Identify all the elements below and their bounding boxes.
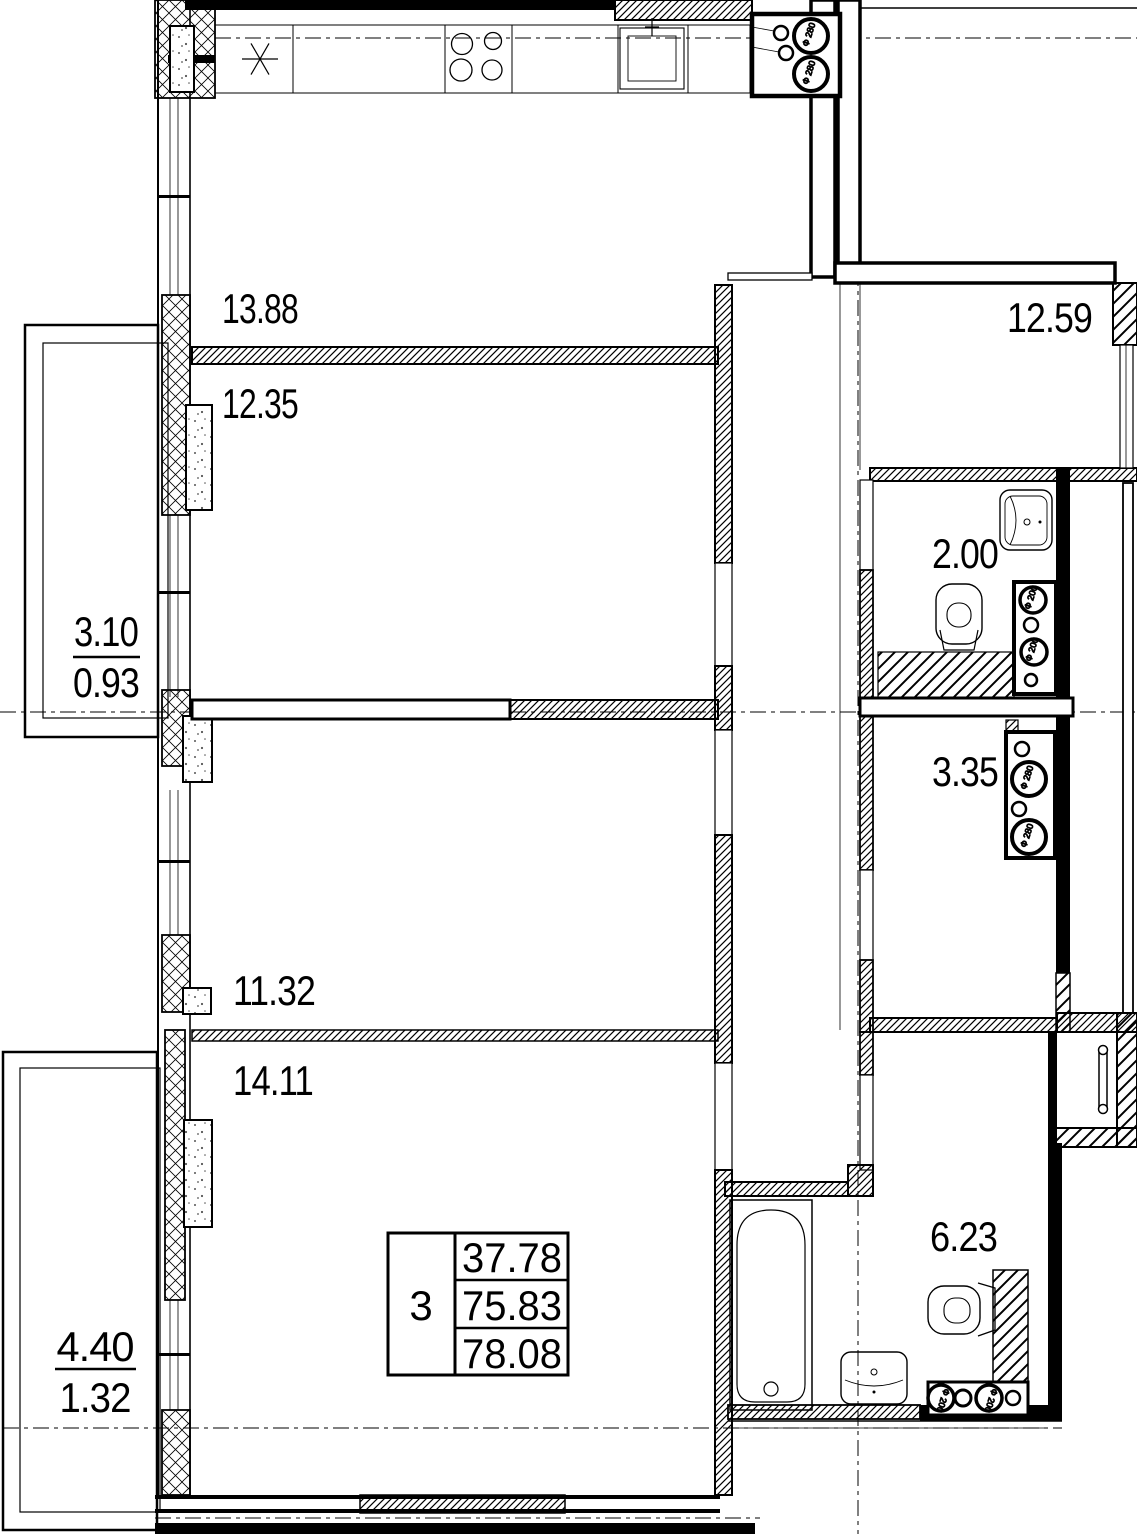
wc-sink-icon [1000,490,1052,550]
kitchen-vent-shaft: Ф 280 Ф 280 [752,14,840,96]
storage-vent-shaft: Ф 280 Ф 280 [1006,732,1055,858]
room-area-labels: 13.88 12.35 12.59 2.00 3.35 11.32 14.11 … [222,285,1092,1260]
wc-toilet-icon [936,584,982,650]
stove-burners-icon [450,33,502,82]
floor-plan-drawing: Ф 280 Ф 280 [0,0,1137,1534]
room-label-kitchen: 13.88 [222,285,298,332]
balcony-bottom-reduced-area: 1.32 [60,1374,131,1421]
door-opening-room-1 [715,563,732,666]
balcony-bottom-outline [3,1052,160,1530]
room-label-room-3: 14.11 [233,1057,313,1104]
balcony-top-full-area: 3.10 [74,608,138,655]
summary-table: 3 37.78 75.83 78.08 [388,1233,568,1377]
left-exterior-wall [155,0,215,1495]
bathroom-sink-icon [841,1352,907,1404]
door-opening-storage [860,870,873,960]
wet-block-walls [848,468,1137,1196]
room-label-room-2: 11.32 [233,967,315,1014]
summary-rooms-count: 3 [409,1282,432,1329]
kitchen-sink-icon [620,18,684,89]
summary-living-area: 37.78 [462,1234,562,1281]
balcony-labels: 3.10 0.93 4.40 1.32 [55,608,140,1421]
bathroom-vent-shaft: Ф 200 Ф 200 [928,1382,1028,1415]
room-label-room-1: 12.35 [222,380,298,427]
kitchen-counter [215,18,750,93]
door-opening-wc [860,480,873,570]
summary-total-area: 78.08 [462,1330,562,1377]
room-label-hallway: 12.59 [1007,294,1092,341]
door-opening-room-3 [715,1063,732,1170]
room-label-bathroom: 6.23 [930,1213,997,1260]
floor-plan-page: Ф 280 Ф 280 [0,0,1137,1534]
door-opening-room-2 [715,730,732,835]
balcony-top-reduced-area: 0.93 [73,659,139,706]
room-label-storage: 3.35 [932,748,998,795]
entrance-door-icon [1099,1046,1108,1114]
opening-vestibule [860,1075,873,1170]
room-label-wc: 2.00 [932,530,998,577]
wc-vent-shaft: Ф 200 Ф 200 [1014,582,1056,694]
summary-floor-area: 75.83 [462,1282,562,1329]
bathtub-icon [730,1200,812,1410]
plumbing-chase [993,1270,1028,1382]
bathroom-toilet-icon [928,1283,995,1336]
fridge-icon [242,43,278,74]
top-walls [168,0,1137,1030]
balcony-bottom-full-area: 4.40 [57,1323,134,1370]
